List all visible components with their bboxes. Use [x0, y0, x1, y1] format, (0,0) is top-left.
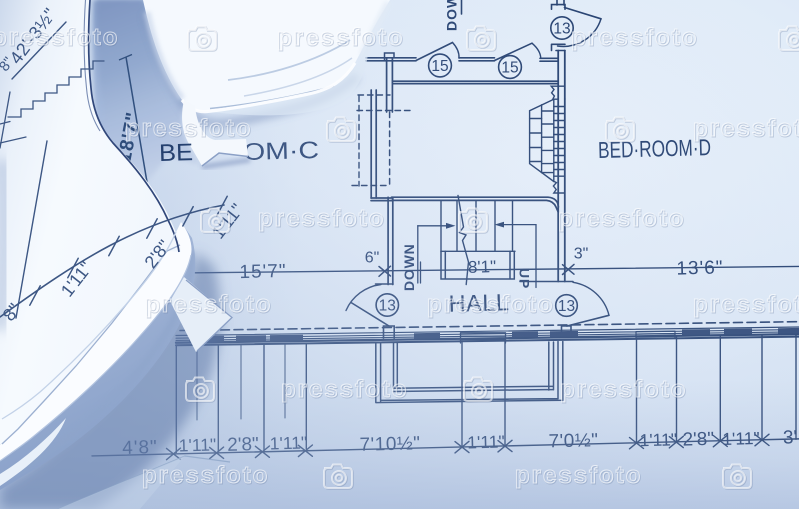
svg-text:BE: BE [159, 139, 194, 167]
